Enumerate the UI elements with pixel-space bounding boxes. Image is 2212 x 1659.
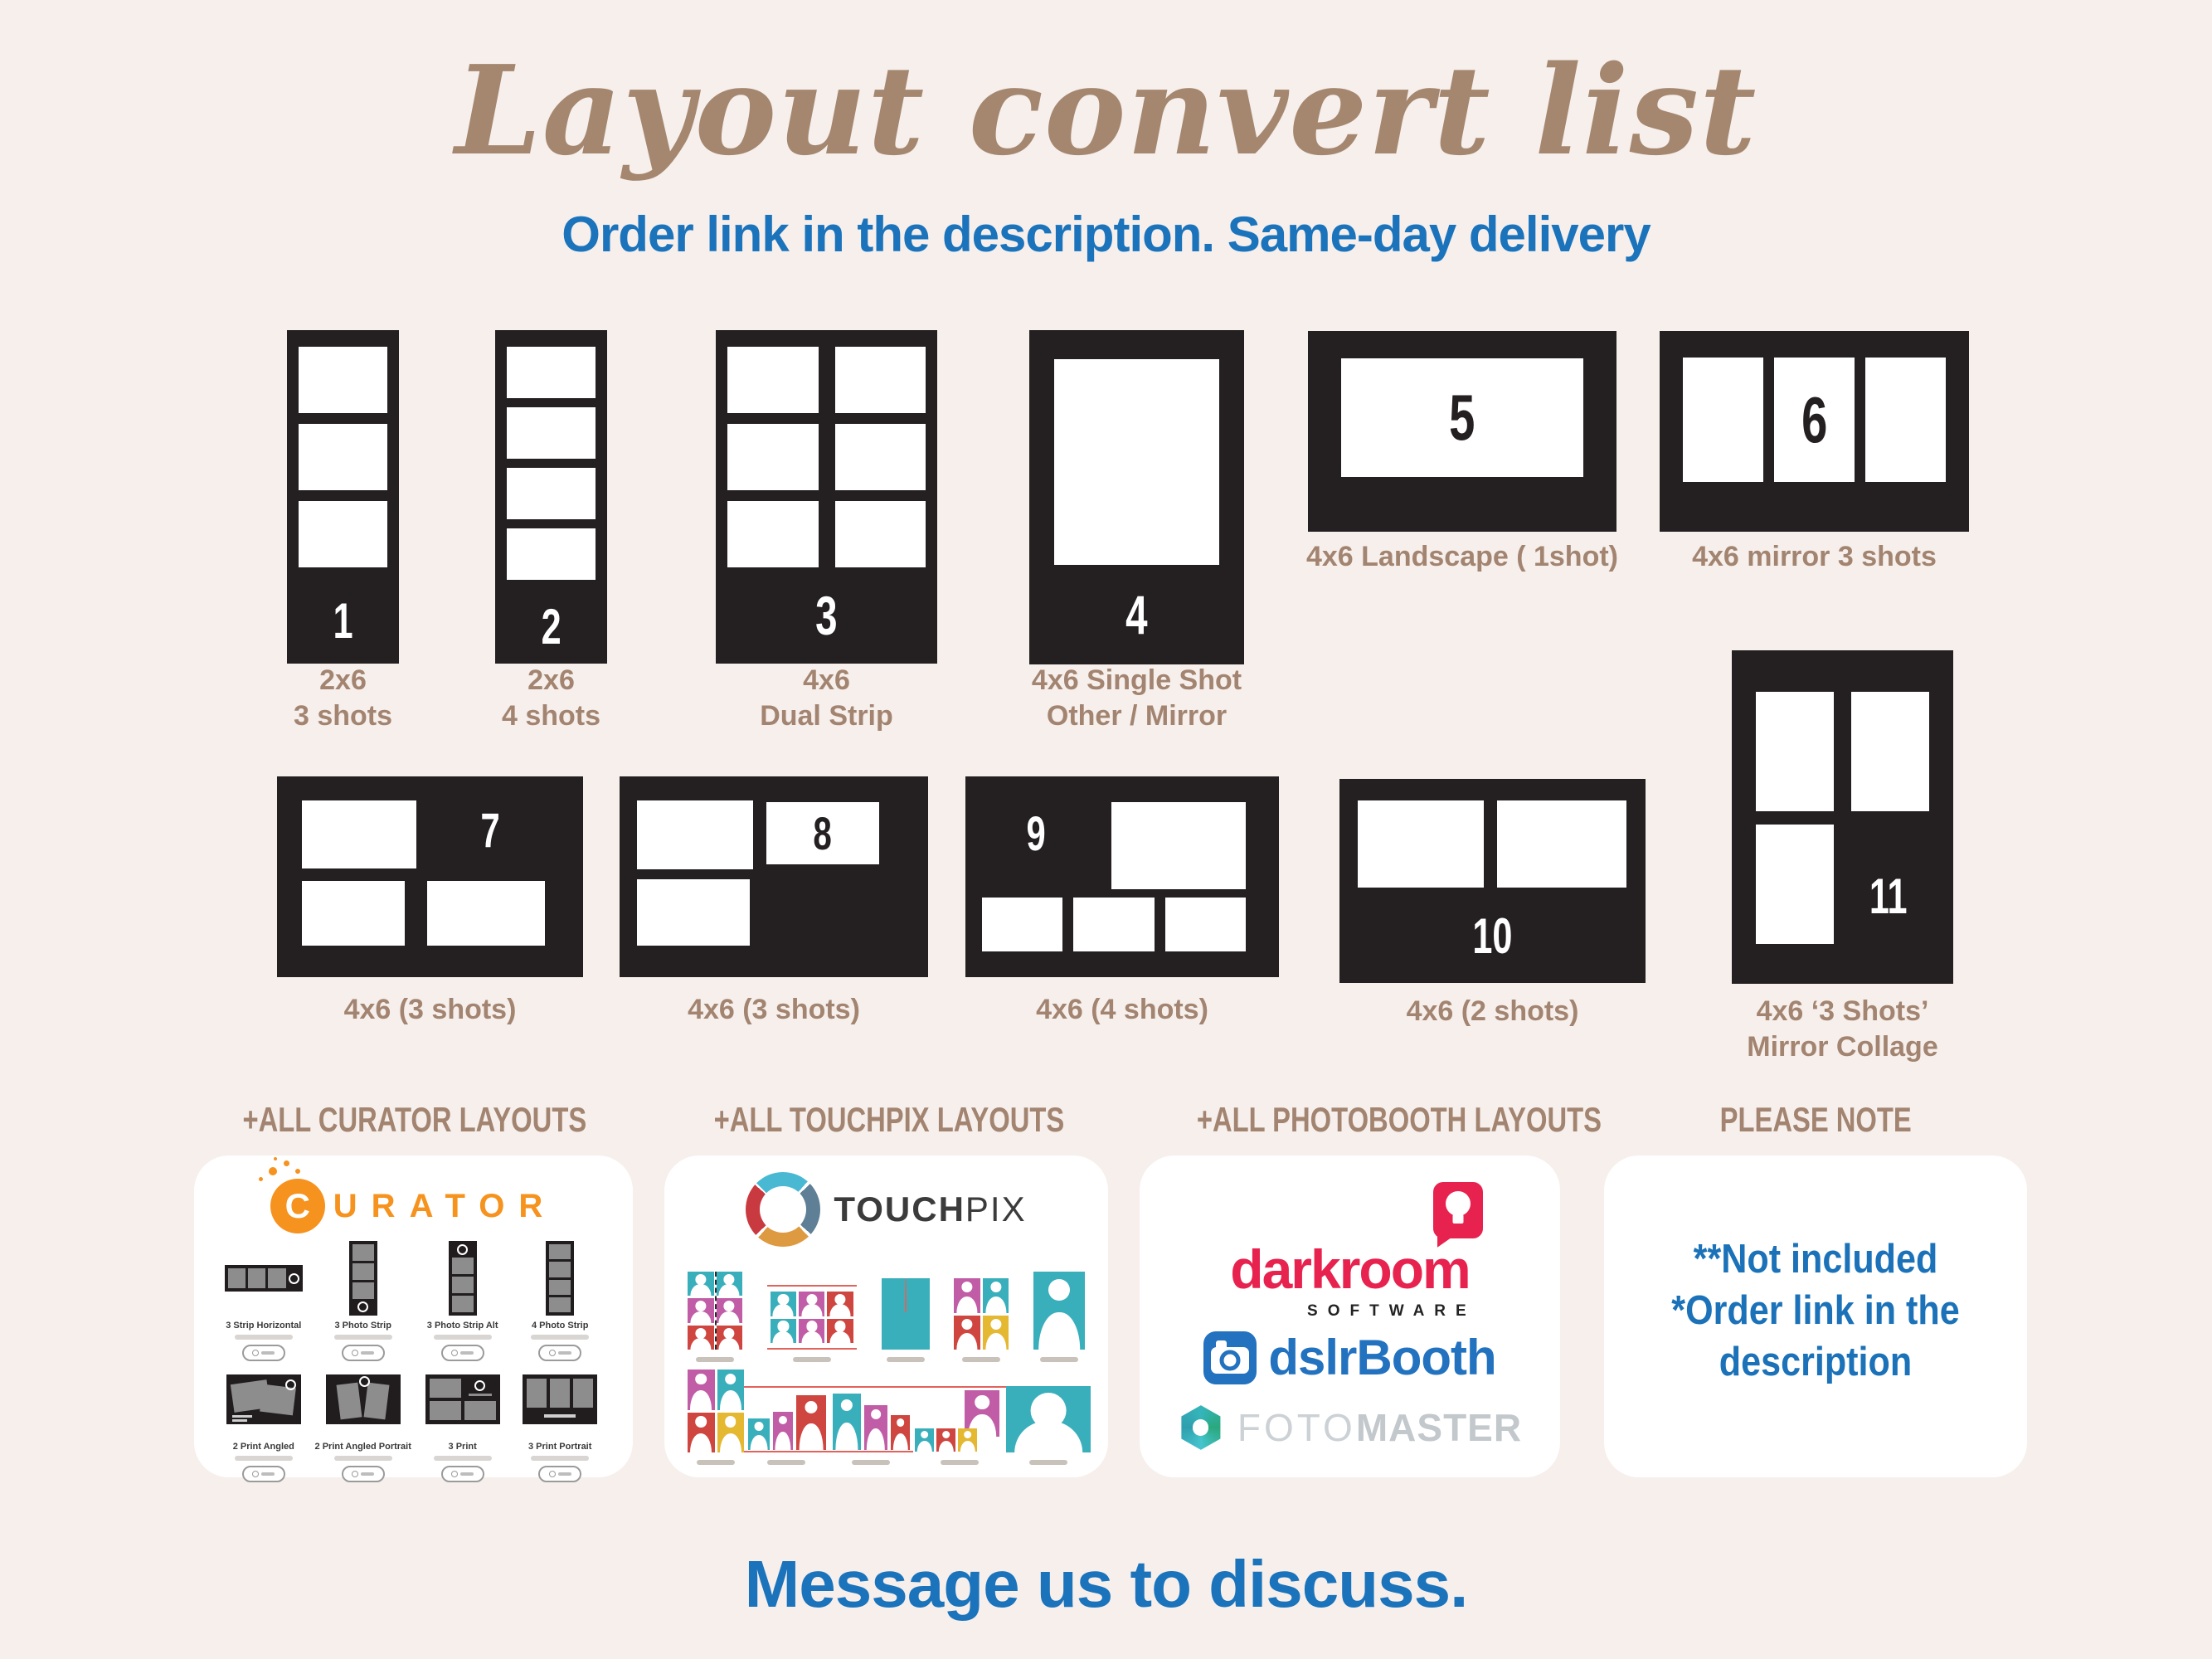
layout-thumb bbox=[349, 1241, 377, 1316]
tile-number: 5 bbox=[1341, 358, 1583, 477]
curator-layout-grid: 3 Strip Horizontal 3 Photo Strip 3 Photo… bbox=[217, 1240, 606, 1466]
photo-slot bbox=[727, 424, 819, 490]
photo-slot bbox=[727, 347, 819, 413]
photo-slot bbox=[1865, 358, 1946, 482]
section-header-touchpix: +ALL TOUCHPIX LAYOUTS bbox=[664, 1100, 1108, 1140]
curator-layout-item: 3 Photo Strip bbox=[315, 1240, 411, 1361]
photo-slot bbox=[637, 800, 753, 869]
layout-tile-1: 1 bbox=[287, 330, 399, 664]
touchpix-thumb-row bbox=[688, 1370, 1085, 1465]
dimension-text bbox=[531, 1456, 589, 1461]
curator-mini-icon bbox=[289, 1273, 299, 1284]
touchpix-logo: TOUCHPIX bbox=[664, 1172, 1108, 1247]
dimension-text bbox=[235, 1335, 293, 1340]
photo-slot bbox=[299, 347, 387, 413]
tile-number: 7 bbox=[461, 800, 519, 861]
note-text: **Not included *Order link in the descri… bbox=[1611, 1233, 2020, 1388]
photo-slot bbox=[1683, 358, 1763, 482]
tile-caption-2: 2x64 shots bbox=[495, 663, 607, 734]
dimension-text bbox=[334, 1335, 392, 1340]
fotomaster-wordmark: FOTOMASTER bbox=[1237, 1408, 1522, 1447]
photo-slot bbox=[1165, 898, 1246, 951]
photo-slot bbox=[507, 347, 596, 398]
thumb-label bbox=[852, 1460, 890, 1465]
section-header-curator: +ALL CURATOR LAYOUTS bbox=[194, 1100, 633, 1140]
photo-slot bbox=[299, 424, 387, 490]
photo-slot bbox=[1497, 800, 1626, 888]
layout-thumb bbox=[1006, 1386, 1091, 1452]
download-button[interactable] bbox=[538, 1466, 581, 1482]
touchpix-layout-item bbox=[767, 1285, 857, 1362]
layout-tile-9: 9 bbox=[965, 776, 1279, 977]
layout-tile-11: 11 bbox=[1732, 650, 1953, 984]
touchpix-layout-item bbox=[882, 1278, 930, 1362]
layout-convert-poster: Layout convert list Order link in the de… bbox=[0, 0, 2212, 1659]
curator-layout-item: 3 Photo Strip Alt bbox=[416, 1240, 509, 1361]
tile-caption-9: 4x6 (4 shots) bbox=[965, 992, 1279, 1028]
touchpix-layout-item bbox=[688, 1370, 744, 1465]
curator-layout-item: 4 Photo Strip bbox=[513, 1240, 606, 1361]
download-button[interactable] bbox=[242, 1466, 285, 1482]
photo-slot bbox=[982, 898, 1062, 951]
photo-slot bbox=[637, 879, 750, 946]
dimension-text bbox=[434, 1456, 492, 1461]
tile-number: 10 bbox=[1339, 908, 1646, 963]
photo-slot bbox=[507, 407, 596, 459]
photo-slot bbox=[302, 800, 416, 868]
thumb-label bbox=[962, 1357, 1000, 1362]
layout-tile-7: 7 bbox=[277, 776, 583, 977]
layout-thumb bbox=[882, 1278, 930, 1350]
curator-logo-icon: C bbox=[270, 1179, 325, 1233]
layout-thumb bbox=[326, 1374, 401, 1424]
touchpix-layout-item bbox=[913, 1386, 1006, 1465]
download-button[interactable] bbox=[342, 1466, 385, 1482]
thumb-label bbox=[793, 1357, 831, 1362]
photo-slot bbox=[727, 501, 819, 567]
touchpix-layout-item bbox=[1033, 1272, 1085, 1362]
touchpix-layout-item bbox=[829, 1386, 913, 1465]
layout-tile-2: 2 bbox=[495, 330, 607, 664]
page-title: Layout convert list bbox=[0, 40, 2212, 181]
photo-slot bbox=[507, 468, 596, 519]
footer-message: Message us to discuss. bbox=[0, 1546, 2212, 1623]
photo-slot bbox=[1054, 359, 1219, 565]
bulb-icon bbox=[1446, 1191, 1471, 1216]
layout-tile-5: 5 bbox=[1308, 331, 1616, 532]
photobooth-card: darkroom SOFTWARE dslrBooth FOTOMASTER bbox=[1140, 1155, 1560, 1477]
layout-thumb bbox=[829, 1386, 913, 1452]
darkroom-bubble-icon bbox=[1433, 1182, 1483, 1238]
touchpix-wordmark: TOUCHPIX bbox=[834, 1190, 1026, 1229]
darkroom-logo: darkroom SOFTWARE bbox=[1140, 1155, 1560, 1321]
curator-card: C URATOR 3 Strip Horizontal 3 Photo Stri… bbox=[194, 1155, 633, 1477]
tile-caption-6: 4x6 mirror 3 shots bbox=[1660, 539, 1969, 575]
thumb-label bbox=[941, 1460, 979, 1465]
dimension-text bbox=[434, 1335, 492, 1340]
tile-caption-4: 4x6 Single ShotOther / Mirror bbox=[1004, 663, 1269, 734]
tile-caption-5: 4x6 Landscape ( 1shot) bbox=[1300, 539, 1625, 575]
touchpix-thumb-row bbox=[688, 1272, 1085, 1362]
tile-number: 2 bbox=[507, 589, 596, 664]
section-header-please-note: PLEASE NOTE bbox=[1604, 1100, 2027, 1140]
subtitle: Order link in the description. Same-day … bbox=[0, 206, 2212, 263]
photo-slot bbox=[507, 528, 596, 580]
layout-tile-4: 4 bbox=[1029, 330, 1244, 664]
photo-slot bbox=[835, 424, 926, 490]
photo-slot bbox=[427, 881, 545, 946]
curator-layout-item: 2 Print Angled Portrait bbox=[315, 1361, 411, 1482]
layout-thumb bbox=[425, 1374, 500, 1424]
layout-tile-6: 6 bbox=[1660, 331, 1969, 532]
tile-caption-8: 4x6 (3 shots) bbox=[620, 992, 928, 1028]
camera-icon bbox=[1203, 1331, 1257, 1384]
layout-thumb bbox=[1033, 1272, 1085, 1350]
photo-slot bbox=[1851, 692, 1929, 811]
layout-thumb bbox=[688, 1370, 744, 1452]
photo-grid bbox=[727, 347, 926, 567]
tile-caption-10: 4x6 (2 shots) bbox=[1339, 994, 1646, 1029]
dimension-text bbox=[334, 1456, 392, 1461]
layout-tile-8: 8 bbox=[620, 776, 928, 977]
curator-layout-item: 2 Print Angled bbox=[217, 1361, 310, 1482]
layout-thumb bbox=[226, 1374, 301, 1424]
photo-slot: 6 bbox=[1774, 358, 1855, 482]
layout-thumb bbox=[225, 1265, 303, 1292]
dslrbooth-wordmark: dslrBooth bbox=[1268, 1333, 1495, 1383]
curator-mini-icon bbox=[359, 1376, 370, 1387]
tile-number: 4 bbox=[1054, 565, 1219, 664]
thumb-label bbox=[697, 1460, 735, 1465]
layout-thumb bbox=[767, 1285, 857, 1350]
tile-number: 1 bbox=[299, 578, 387, 664]
thumb-label bbox=[767, 1460, 805, 1465]
section-header-photobooth: +ALL PHOTOBOOTH LAYOUTS bbox=[1140, 1100, 1560, 1140]
photo-slot bbox=[302, 881, 405, 946]
photo-slot bbox=[1756, 825, 1834, 944]
tile-number: 11 bbox=[1856, 864, 1921, 927]
fotomaster-logo: FOTOMASTER bbox=[1140, 1404, 1560, 1451]
layout-thumb bbox=[744, 1386, 829, 1452]
curator-mini-icon bbox=[357, 1301, 368, 1312]
photo-slot bbox=[835, 501, 926, 567]
photo-slot bbox=[1111, 802, 1246, 889]
photo-slot: 5 bbox=[1341, 358, 1583, 477]
curator-logo: C URATOR bbox=[194, 1179, 633, 1233]
download-button[interactable] bbox=[441, 1345, 484, 1361]
dimension-text bbox=[235, 1456, 293, 1461]
tile-number: 9 bbox=[1009, 803, 1063, 864]
curator-mini-icon bbox=[285, 1379, 296, 1390]
thumb-label bbox=[1029, 1460, 1067, 1465]
thumb-label bbox=[1040, 1357, 1078, 1362]
touchpix-layout-item bbox=[744, 1386, 829, 1465]
photo-slot bbox=[299, 501, 387, 567]
layout-thumb bbox=[546, 1241, 574, 1316]
layout-thumb bbox=[913, 1386, 1006, 1452]
photo-slot bbox=[1073, 898, 1155, 951]
tile-caption-7: 4x6 (3 shots) bbox=[277, 992, 583, 1028]
touchpix-layout-item bbox=[688, 1272, 742, 1362]
tile-caption-1: 2x63 shots bbox=[287, 663, 399, 734]
layout-thumb bbox=[523, 1374, 597, 1424]
tile-caption-11: 4x6 ‘3 Shots’Mirror Collage bbox=[1732, 994, 1953, 1065]
tile-caption-3: 4x6Dual Strip bbox=[691, 663, 962, 734]
download-button[interactable] bbox=[342, 1345, 385, 1361]
layout-thumb bbox=[688, 1272, 742, 1350]
thumb-label bbox=[696, 1357, 734, 1362]
download-button[interactable] bbox=[538, 1345, 581, 1361]
curator-mini-icon bbox=[474, 1380, 485, 1391]
layout-thumb bbox=[449, 1241, 477, 1316]
darkroom-software-label: SOFTWARE bbox=[1230, 1302, 1475, 1321]
touchpix-layout-item bbox=[954, 1278, 1009, 1362]
thumb-label bbox=[887, 1357, 925, 1362]
download-button[interactable] bbox=[441, 1466, 484, 1482]
curator-layout-item: 3 Print Portrait bbox=[513, 1361, 606, 1482]
photo-slot bbox=[1358, 800, 1484, 888]
please-note-card: **Not included *Order link in the descri… bbox=[1604, 1155, 2027, 1477]
layout-tile-3: 3 bbox=[716, 330, 937, 664]
tile-number: 8 bbox=[766, 802, 879, 864]
curator-mini-icon bbox=[457, 1244, 468, 1255]
photo-slot: 8 bbox=[766, 802, 879, 864]
dslrbooth-logo: dslrBooth bbox=[1140, 1331, 1560, 1384]
curator-wordmark: URATOR bbox=[333, 1188, 557, 1225]
touchpix-ring-icon bbox=[746, 1172, 820, 1247]
touchpix-card: TOUCHPIX bbox=[664, 1155, 1108, 1477]
darkroom-wordmark: darkroom bbox=[1230, 1242, 1469, 1297]
curator-layout-item: 3 Print bbox=[416, 1361, 509, 1482]
photo-slot bbox=[835, 347, 926, 413]
download-button[interactable] bbox=[242, 1345, 285, 1361]
layout-tile-10: 10 bbox=[1339, 779, 1646, 983]
tile-number: 3 bbox=[727, 567, 926, 664]
photo-slot bbox=[1756, 692, 1834, 811]
dimension-text bbox=[531, 1335, 589, 1340]
layout-thumb bbox=[954, 1278, 1009, 1350]
touchpix-layout-item bbox=[1006, 1386, 1091, 1465]
aperture-icon bbox=[1178, 1404, 1224, 1451]
curator-layout-item: 3 Strip Horizontal bbox=[217, 1240, 310, 1361]
